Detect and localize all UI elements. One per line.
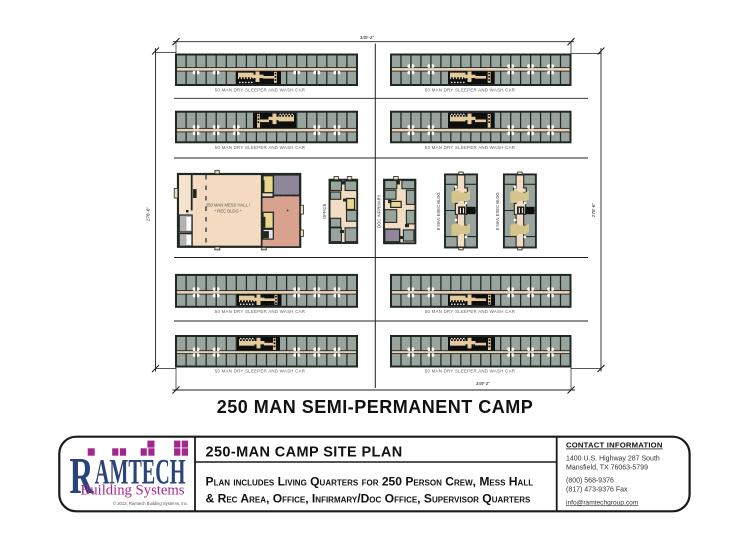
svg-text:* REC BLDG *: * REC BLDG * [215, 209, 242, 214]
svg-text:Plan includes Living Quarters: Plan includes Living Quarters for 250 Pe… [206, 475, 534, 489]
svg-text:349'-2": 349'-2" [360, 35, 375, 40]
svg-text:50 MAN DRY SLEEPER AND WASH CA: 50 MAN DRY SLEEPER AND WASH CAR [425, 309, 515, 314]
svg-text:(800) 568-9376: (800) 568-9376 [566, 478, 614, 485]
svg-text:349'-2": 349'-2" [476, 381, 491, 386]
svg-text:250-MAN CAMP SITE PLAN: 250-MAN CAMP SITE PLAN [206, 445, 403, 461]
svg-text:Building Systems: Building Systems [80, 483, 184, 499]
svg-text:250 MAN MESS HALL /: 250 MAN MESS HALL / [206, 203, 251, 208]
svg-text:DOC INFIRMARY: DOC INFIRMARY [377, 194, 382, 228]
svg-text:© 2012, Ramtech Building Syste: © 2012, Ramtech Building Systems, Inc. [113, 501, 188, 506]
svg-text:250 MAN SEMI-PERMANENT CAMP: 250 MAN SEMI-PERMANENT CAMP [217, 397, 534, 417]
svg-text:50 MAN DRY SLEEPER AND WASH CA: 50 MAN DRY SLEEPER AND WASH CAR [425, 145, 515, 150]
svg-text:50 MAN DRY SLEEPER AND WASH CA: 50 MAN DRY SLEEPER AND WASH CAR [215, 309, 305, 314]
svg-text:50 MAN DRY SLEEPER AND WASH CA: 50 MAN DRY SLEEPER AND WASH CAR [425, 369, 515, 374]
svg-text:& Rec Area, Office, Infirmary/: & Rec Area, Office, Infirmary/Doc Office… [206, 492, 532, 506]
svg-text:1400 U.S. Highway 287 South: 1400 U.S. Highway 287 South [566, 456, 660, 463]
svg-text:278'-6": 278'-6" [146, 207, 151, 222]
svg-text:8 MAN EXEC BLDG: 8 MAN EXEC BLDG [495, 192, 500, 230]
svg-text:info@ramtechgroup.com: info@ramtechgroup.com [566, 499, 639, 506]
svg-text:50 MAN DRY SLEEPER AND WASH CA: 50 MAN DRY SLEEPER AND WASH CAR [215, 88, 305, 93]
svg-text:50 MAN DRY SLEEPER AND WASH CA: 50 MAN DRY SLEEPER AND WASH CAR [215, 145, 305, 150]
svg-text:278'-6": 278'-6" [591, 203, 596, 218]
svg-text:8 MAN EXEC BLDG: 8 MAN EXEC BLDG [436, 192, 441, 230]
svg-text:50 MAN DRY SLEEPER AND WASH CA: 50 MAN DRY SLEEPER AND WASH CAR [215, 369, 305, 374]
svg-text:(817) 473-9376 Fax: (817) 473-9376 Fax [566, 487, 628, 494]
svg-text:50 MAN DRY SLEEPER AND WASH CA: 50 MAN DRY SLEEPER AND WASH CAR [425, 88, 515, 93]
svg-text:Mansfield, TX 76063-5799: Mansfield, TX 76063-5799 [566, 465, 648, 472]
svg-text:CONTACT INFORMATION: CONTACT INFORMATION [566, 441, 663, 450]
svg-text:OFFICE: OFFICE [322, 203, 327, 219]
